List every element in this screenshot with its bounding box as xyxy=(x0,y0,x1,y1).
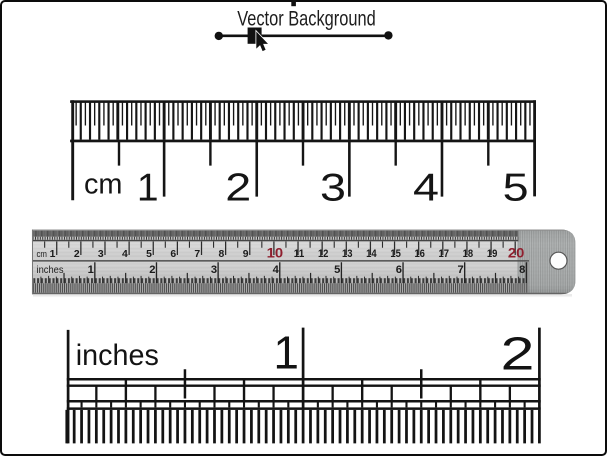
svg-text:7: 7 xyxy=(194,249,200,260)
svg-text:3: 3 xyxy=(320,167,346,210)
svg-text:5: 5 xyxy=(503,167,529,210)
svg-text:18: 18 xyxy=(463,248,474,260)
svg-text:inches: inches xyxy=(37,265,64,276)
svg-text:2: 2 xyxy=(74,249,80,260)
svg-text:2: 2 xyxy=(501,327,535,379)
svg-text:4: 4 xyxy=(413,167,439,210)
svg-text:5: 5 xyxy=(334,264,340,276)
svg-text:2: 2 xyxy=(149,264,155,276)
svg-text:11: 11 xyxy=(294,248,305,260)
svg-text:14: 14 xyxy=(366,248,377,260)
svg-text:9: 9 xyxy=(243,249,249,260)
svg-text:cm: cm xyxy=(84,168,123,200)
svg-text:16: 16 xyxy=(414,248,425,260)
svg-text:4: 4 xyxy=(273,264,280,276)
svg-text:2: 2 xyxy=(225,167,251,210)
svg-text:3: 3 xyxy=(98,249,104,260)
svg-text:1: 1 xyxy=(50,249,56,260)
svg-text:8: 8 xyxy=(519,264,525,276)
svg-text:19: 19 xyxy=(487,248,498,260)
svg-text:17: 17 xyxy=(439,248,450,260)
svg-text:5: 5 xyxy=(146,249,152,260)
svg-text:1: 1 xyxy=(88,264,94,276)
svg-text:6: 6 xyxy=(170,249,176,260)
svg-text:cm: cm xyxy=(37,249,48,260)
svg-text:1: 1 xyxy=(273,327,299,379)
svg-text:8: 8 xyxy=(219,249,225,260)
svg-text:3: 3 xyxy=(211,264,217,276)
svg-text:1: 1 xyxy=(137,167,159,210)
svg-text:6: 6 xyxy=(396,264,402,276)
svg-text:20: 20 xyxy=(508,246,525,261)
svg-text:inches: inches xyxy=(76,339,159,372)
svg-text:4: 4 xyxy=(122,249,128,260)
svg-text:7: 7 xyxy=(457,264,463,276)
svg-text:12: 12 xyxy=(318,248,329,260)
svg-text:Vector Background: Vector Background xyxy=(237,8,376,31)
svg-text:15: 15 xyxy=(390,248,401,260)
svg-text:13: 13 xyxy=(342,248,353,260)
svg-text:10: 10 xyxy=(267,246,284,261)
